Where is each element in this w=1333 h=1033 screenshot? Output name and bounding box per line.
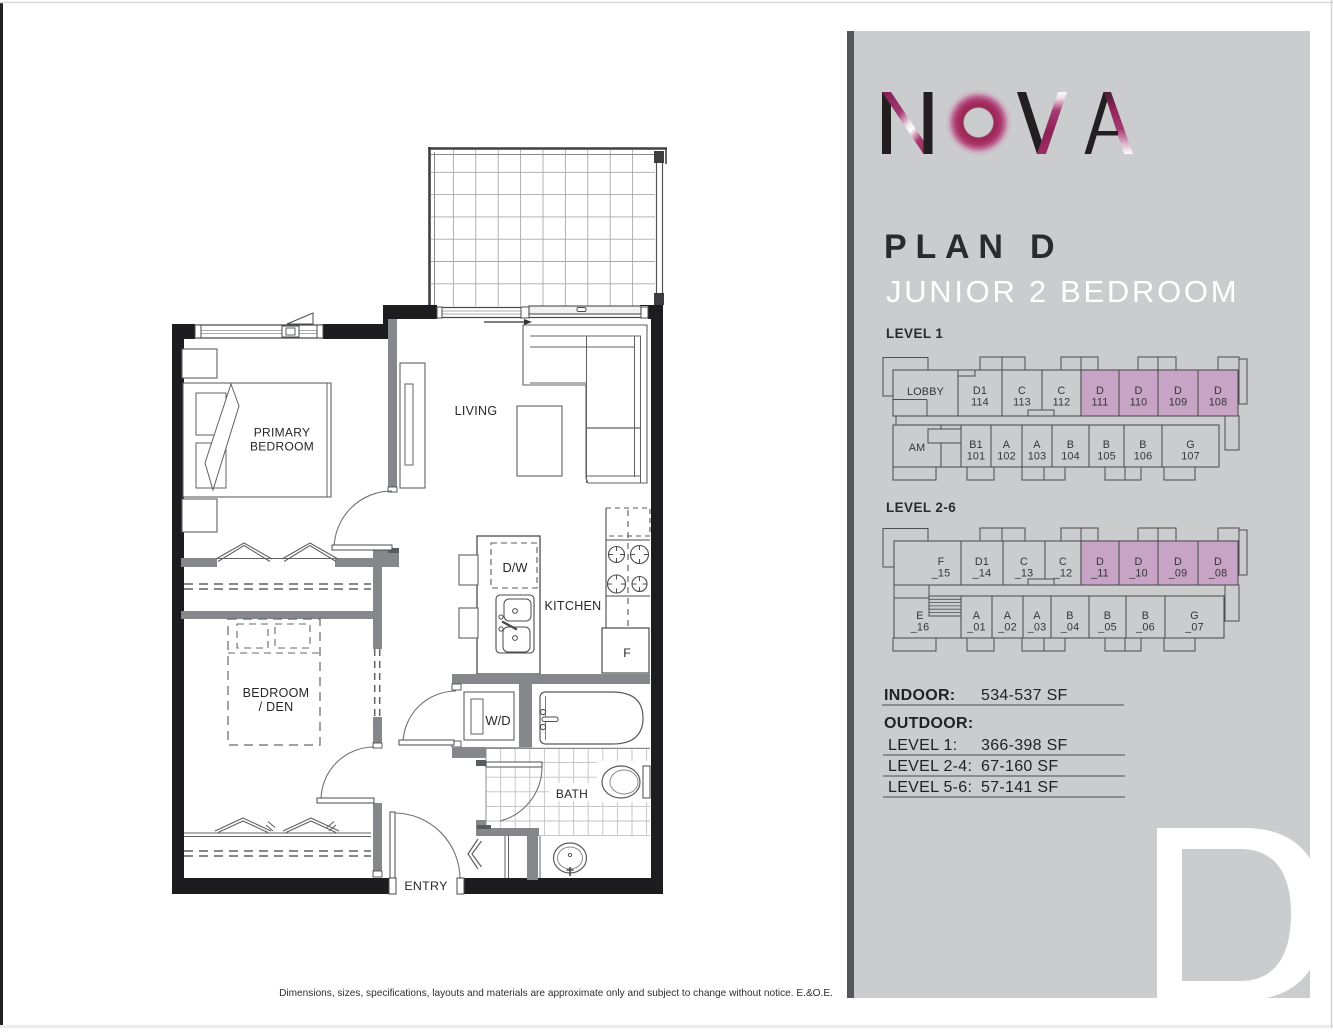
svg-text:INDOOR:: INDOOR:: [884, 687, 955, 704]
svg-text:LIVING: LIVING: [455, 404, 498, 418]
svg-text:B: B: [1066, 610, 1073, 622]
svg-text:_03: _03: [1027, 621, 1047, 633]
svg-text:LEVEL 1: LEVEL 1: [886, 326, 943, 341]
svg-text:_16: _16: [910, 621, 930, 633]
svg-text:_10: _10: [1128, 567, 1148, 579]
svg-text:PRIMARY: PRIMARY: [254, 426, 311, 440]
svg-text:B: B: [1104, 610, 1111, 622]
svg-text:_15: _15: [931, 567, 951, 579]
svg-text:D: D: [1096, 556, 1104, 568]
svg-text:109: 109: [1169, 396, 1188, 408]
svg-text:A: A: [1003, 439, 1011, 451]
svg-text:A: A: [973, 610, 981, 622]
svg-text:111: 111: [1091, 396, 1108, 408]
svg-text:E: E: [916, 610, 923, 622]
svg-text:B: B: [1067, 439, 1074, 451]
svg-text:C: C: [1058, 385, 1066, 397]
svg-text:57-141 SF: 57-141 SF: [981, 779, 1058, 796]
svg-text:_01: _01: [966, 621, 986, 633]
svg-text:101: 101: [967, 450, 986, 462]
svg-text:W/D: W/D: [485, 713, 510, 728]
svg-text:F: F: [623, 646, 631, 660]
svg-text:D: D: [1135, 556, 1143, 568]
svg-text:107: 107: [1181, 450, 1200, 462]
svg-text:105: 105: [1097, 450, 1116, 462]
svg-text:_04: _04: [1060, 621, 1080, 633]
svg-text:_07: _07: [1184, 621, 1204, 633]
svg-text:_09: _09: [1168, 567, 1188, 579]
svg-text:C: C: [1018, 385, 1026, 397]
svg-text:/ DEN: / DEN: [259, 700, 294, 714]
svg-text:_08: _08: [1208, 567, 1228, 579]
svg-text:JUNIOR 2 BEDROOM: JUNIOR 2 BEDROOM: [886, 274, 1239, 309]
svg-text:B: B: [1142, 610, 1149, 622]
svg-text:113: 113: [1013, 396, 1031, 408]
svg-text:F: F: [938, 556, 945, 568]
svg-text:D: D: [1096, 385, 1104, 397]
svg-text:_12: _12: [1053, 567, 1073, 579]
svg-text:A: A: [1004, 610, 1012, 622]
svg-text:A: A: [1033, 439, 1041, 451]
svg-text:BEDROOM: BEDROOM: [250, 440, 314, 454]
svg-text:B1: B1: [969, 439, 983, 451]
svg-text:D1: D1: [973, 385, 987, 397]
svg-text:AM: AM: [909, 442, 926, 454]
svg-text:LEVEL 5-6:: LEVEL 5-6:: [888, 779, 972, 796]
svg-text:D/W: D/W: [503, 560, 529, 575]
svg-text:_02: _02: [997, 621, 1017, 633]
svg-text:_13: _13: [1014, 567, 1034, 579]
svg-text:D: D: [1135, 385, 1143, 397]
svg-text:D: D: [1214, 385, 1222, 397]
svg-text:108: 108: [1209, 396, 1228, 408]
svg-text:B: B: [1103, 439, 1110, 451]
svg-text:_05: _05: [1097, 621, 1117, 633]
svg-text:BATH: BATH: [556, 787, 588, 801]
svg-text:103: 103: [1028, 450, 1047, 462]
svg-text:106: 106: [1134, 450, 1153, 462]
svg-text:PLAN D: PLAN D: [884, 228, 1063, 266]
svg-text:_11: _11: [1090, 567, 1109, 579]
svg-text:534-537 SF: 534-537 SF: [981, 687, 1068, 704]
svg-text:LEVEL 2-6: LEVEL 2-6: [886, 500, 956, 515]
svg-text:D: D: [1174, 385, 1182, 397]
svg-text:114: 114: [971, 396, 989, 408]
svg-text:_06: _06: [1135, 621, 1155, 633]
svg-text:366-398 SF: 366-398 SF: [981, 737, 1068, 754]
svg-text:67-160 SF: 67-160 SF: [981, 758, 1058, 775]
svg-text:_14: _14: [972, 567, 992, 579]
svg-text:A: A: [1033, 610, 1041, 622]
svg-text:KITCHEN: KITCHEN: [545, 599, 602, 613]
svg-text:Dimensions, sizes, specificati: Dimensions, sizes, specifications, layou…: [279, 988, 833, 999]
svg-text:LOBBY: LOBBY: [907, 386, 944, 398]
svg-text:D: D: [1214, 556, 1222, 568]
svg-text:110: 110: [1130, 396, 1148, 408]
svg-text:LEVEL 2-4:: LEVEL 2-4:: [888, 758, 972, 775]
svg-text:G: G: [1186, 439, 1195, 451]
svg-text:104: 104: [1061, 450, 1080, 462]
svg-text:102: 102: [997, 450, 1016, 462]
svg-text:OUTDOOR:: OUTDOOR:: [884, 715, 974, 732]
svg-text:C: C: [1059, 556, 1067, 568]
svg-text:ENTRY: ENTRY: [404, 879, 447, 893]
svg-text:G: G: [1190, 610, 1199, 622]
svg-text:LEVEL 1:: LEVEL 1:: [888, 737, 957, 754]
svg-text:B: B: [1139, 439, 1146, 451]
svg-text:C: C: [1020, 556, 1028, 568]
svg-text:BEDROOM: BEDROOM: [243, 686, 310, 700]
svg-text:112: 112: [1053, 396, 1071, 408]
svg-text:D: D: [1174, 556, 1182, 568]
svg-text:D1: D1: [975, 556, 989, 568]
